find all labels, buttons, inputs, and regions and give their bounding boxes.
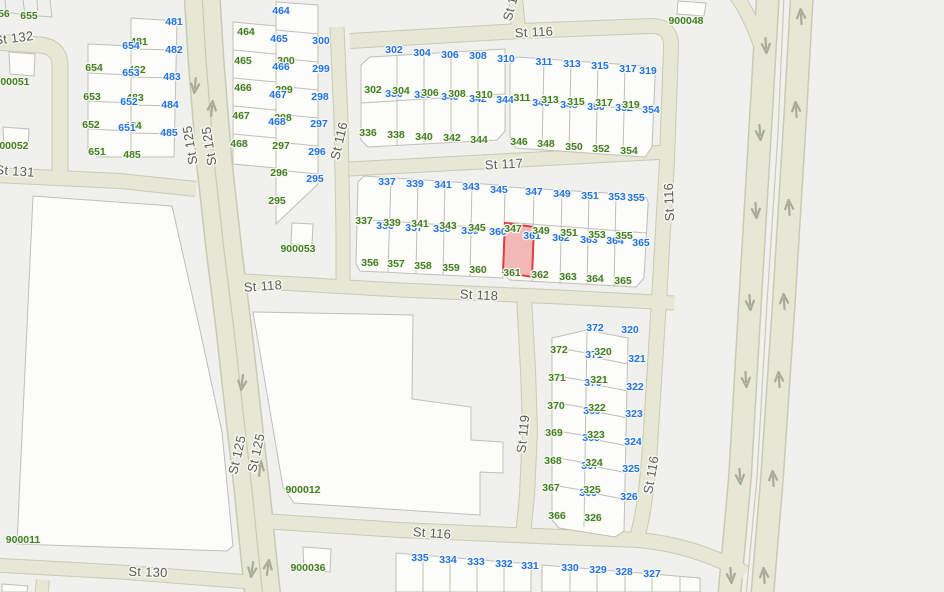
parcel-label-651: 651 — [88, 146, 106, 158]
parcel-label-297: 297 — [272, 140, 290, 152]
parcel-900053-box — [291, 223, 313, 245]
street-name-label: St 130 — [128, 564, 168, 580]
parcel-label-295: 295 — [306, 173, 324, 185]
parcel-label-322: 322 — [588, 402, 606, 414]
parcel-label-345: 345 — [468, 222, 486, 234]
parcel-label-319: 319 — [622, 99, 640, 111]
parcel-label-340: 340 — [415, 131, 433, 143]
parcel-label-466: 466 — [234, 82, 252, 94]
parcel-label-485: 485 — [160, 127, 178, 139]
parcel-label-320: 320 — [594, 346, 612, 358]
parcel-label-304: 304 — [413, 47, 431, 59]
parcel-label-342: 342 — [443, 132, 461, 144]
parcel-label-464: 464 — [237, 26, 255, 38]
block-id-label-900053: 900053 — [280, 243, 315, 255]
parcel-label-465: 465 — [270, 33, 288, 45]
parcel-label-485: 485 — [123, 149, 141, 161]
parcel-label-313: 313 — [563, 58, 581, 70]
parcel-label-323: 323 — [625, 408, 643, 420]
block-id-label-900012: 900012 — [285, 484, 320, 496]
parcel-label-295: 295 — [268, 195, 286, 207]
parcel-label-368: 368 — [544, 455, 562, 467]
street-name-label: St 116 — [514, 23, 553, 40]
parcel-label-302: 302 — [364, 84, 382, 96]
parcel-label-299: 299 — [312, 63, 330, 75]
parcel-label-337: 337 — [355, 215, 373, 227]
parcel-label-354: 354 — [620, 145, 638, 157]
parcel-label-350: 350 — [565, 141, 583, 153]
parcel-label-317: 317 — [619, 63, 637, 75]
parcel-label-467: 467 — [269, 89, 287, 101]
parcel-label-365: 365 — [614, 275, 632, 287]
street-name-label: St 117 — [484, 155, 523, 172]
street-name-label: St 118 — [243, 277, 282, 295]
parcel-label-464: 464 — [272, 5, 290, 17]
parcel-label-343: 343 — [462, 181, 480, 193]
parcel-label-357: 357 — [387, 258, 405, 270]
parcel-label-361: 361 — [503, 267, 521, 279]
block-id-label-900051: 900051 — [0, 76, 30, 88]
parcel-label-326: 326 — [584, 512, 602, 524]
parcel-label-365: 365 — [632, 237, 650, 249]
parcel-label-467: 467 — [232, 110, 250, 122]
parcel-label-328: 328 — [615, 566, 633, 578]
block-id-label-900011: 900011 — [6, 534, 41, 546]
parcel-label-351: 351 — [581, 190, 599, 202]
parcel-label-654: 654 — [122, 40, 140, 52]
parcel-label-313: 313 — [541, 94, 559, 106]
parcel-label-372: 372 — [586, 322, 604, 334]
parcel-label-347: 347 — [525, 186, 543, 198]
parcel-label-308: 308 — [469, 50, 487, 62]
parcel-label-466: 466 — [272, 61, 290, 73]
parcel-label-355: 355 — [615, 230, 633, 242]
parcel-label-468: 468 — [268, 116, 286, 128]
parcel-label-324: 324 — [624, 436, 642, 448]
parcel-label-308: 308 — [448, 88, 466, 100]
street-name-label: St 118 — [459, 286, 498, 303]
parcel-label-315: 315 — [591, 60, 609, 72]
parcel-label-333: 333 — [467, 556, 485, 568]
parcel-label-353: 353 — [608, 191, 626, 203]
parcel-label-319: 319 — [639, 65, 657, 77]
parcel-label-366: 366 — [548, 510, 566, 522]
parcel-label-653: 653 — [83, 91, 101, 103]
parcel-label-652: 652 — [120, 96, 138, 108]
parcel-label-338: 338 — [387, 129, 405, 141]
parcel-label-311: 311 — [536, 56, 553, 68]
parcel-label-359: 359 — [442, 262, 460, 274]
parcel-label-326: 326 — [620, 491, 638, 503]
parcel-label-321: 321 — [590, 374, 608, 386]
parcel-label-323: 323 — [587, 429, 605, 441]
parcel-label-345: 345 — [490, 184, 508, 196]
parcel-label-351: 351 — [560, 227, 578, 239]
parcel-label-339: 339 — [383, 217, 401, 229]
parcel-label-654: 654 — [85, 62, 103, 74]
street-name-label: St 116 — [661, 183, 677, 222]
parcel-label-349: 349 — [532, 225, 550, 237]
parcel-label-310: 310 — [475, 89, 493, 101]
parcel-label-339: 339 — [406, 178, 424, 190]
parcel-label-653: 653 — [122, 67, 140, 79]
parcel-label-483: 483 — [163, 71, 181, 83]
map-canvas[interactable]: 6566554814816544826544826534836534836524… — [0, 0, 944, 592]
street-name-label: St 131 — [0, 162, 35, 180]
parcel-label-296: 296 — [270, 167, 288, 179]
parcel-label-332: 332 — [495, 558, 513, 570]
parcel-label-297: 297 — [310, 118, 328, 130]
parcel-label-348: 348 — [537, 138, 555, 150]
parcel-label-482: 482 — [165, 44, 183, 56]
parcel-label-310: 310 — [497, 53, 515, 65]
parcel-label-306: 306 — [421, 87, 439, 99]
parcel-label-320: 320 — [621, 324, 639, 336]
parcel-label-296: 296 — [308, 146, 326, 158]
parcel-label-325: 325 — [583, 484, 601, 496]
parcel-label-651: 651 — [118, 122, 136, 134]
parcel-label-302: 302 — [385, 44, 403, 56]
parcel-label-465: 465 — [234, 55, 252, 67]
block-id-label-900048: 900048 — [668, 15, 703, 27]
parcel-label-344: 344 — [496, 94, 514, 106]
parcel-label-344: 344 — [470, 134, 488, 146]
parcel-label-353: 353 — [588, 229, 606, 241]
parcel-label-652: 652 — [82, 119, 100, 131]
parcel-label-655: 655 — [20, 10, 38, 22]
parcel-label-372: 372 — [550, 344, 568, 356]
parcel-label-315: 315 — [567, 96, 585, 108]
parcel-label-347: 347 — [504, 223, 522, 235]
parcel-label-468: 468 — [230, 138, 248, 150]
parcel-label-364: 364 — [586, 273, 604, 285]
parcel-label-341: 341 — [411, 218, 429, 230]
block-id-label-900036: 900036 — [290, 562, 325, 574]
parcel-label-354: 354 — [642, 104, 660, 116]
parcel-label-330: 330 — [561, 562, 579, 574]
parcel-label-331: 331 — [521, 560, 539, 572]
parcel-900051-box — [9, 52, 35, 76]
parcel-label-367: 367 — [542, 482, 560, 494]
parcel-label-298: 298 — [311, 91, 329, 103]
parcel-label-371: 371 — [548, 372, 566, 384]
parcel-label-358: 358 — [414, 260, 432, 272]
parcel-label-322: 322 — [626, 381, 644, 393]
parcel-label-356: 356 — [361, 257, 379, 269]
parcel-label-349: 349 — [553, 188, 571, 200]
parcel-label-321: 321 — [628, 353, 646, 365]
parcel-label-336: 336 — [359, 127, 377, 139]
parcel-label-346: 346 — [510, 136, 528, 148]
parcel-label-369: 369 — [545, 427, 563, 439]
parcel-900048-box — [677, 1, 706, 16]
parcel-label-324: 324 — [585, 457, 603, 469]
parcel-label-337: 337 — [378, 176, 396, 188]
block-id-label-900052: 900052 — [0, 140, 29, 152]
parcel-label-370: 370 — [547, 400, 565, 412]
parcel-label-355: 355 — [627, 192, 645, 204]
parcel-label-329: 329 — [589, 564, 607, 576]
parcel-label-484: 484 — [161, 99, 179, 111]
parcel-label-481: 481 — [165, 16, 183, 28]
parcel-label-304: 304 — [392, 85, 410, 97]
map-viewport[interactable]: 6566554814816544826544826534836534836524… — [0, 0, 944, 592]
parcel-label-363: 363 — [559, 271, 577, 283]
parcel-label-325: 325 — [622, 463, 640, 475]
parcel-label-656: 656 — [0, 8, 10, 20]
parcel-label-311: 311 — [514, 92, 531, 104]
parcel-label-317: 317 — [595, 97, 613, 109]
parcel-label-341: 341 — [434, 179, 452, 191]
parcel-label-343: 343 — [439, 220, 457, 232]
parcel-label-360: 360 — [469, 264, 487, 276]
street-name-label: St 116 — [412, 524, 451, 542]
parcel-label-352: 352 — [592, 143, 610, 155]
parcel-label-300: 300 — [312, 35, 330, 47]
parcel-label-306: 306 — [441, 49, 459, 61]
parcel-label-334: 334 — [439, 554, 457, 566]
parcel-label-327: 327 — [643, 568, 661, 580]
parcel-label-362: 362 — [531, 269, 549, 281]
parcel-label-335: 335 — [411, 552, 429, 564]
